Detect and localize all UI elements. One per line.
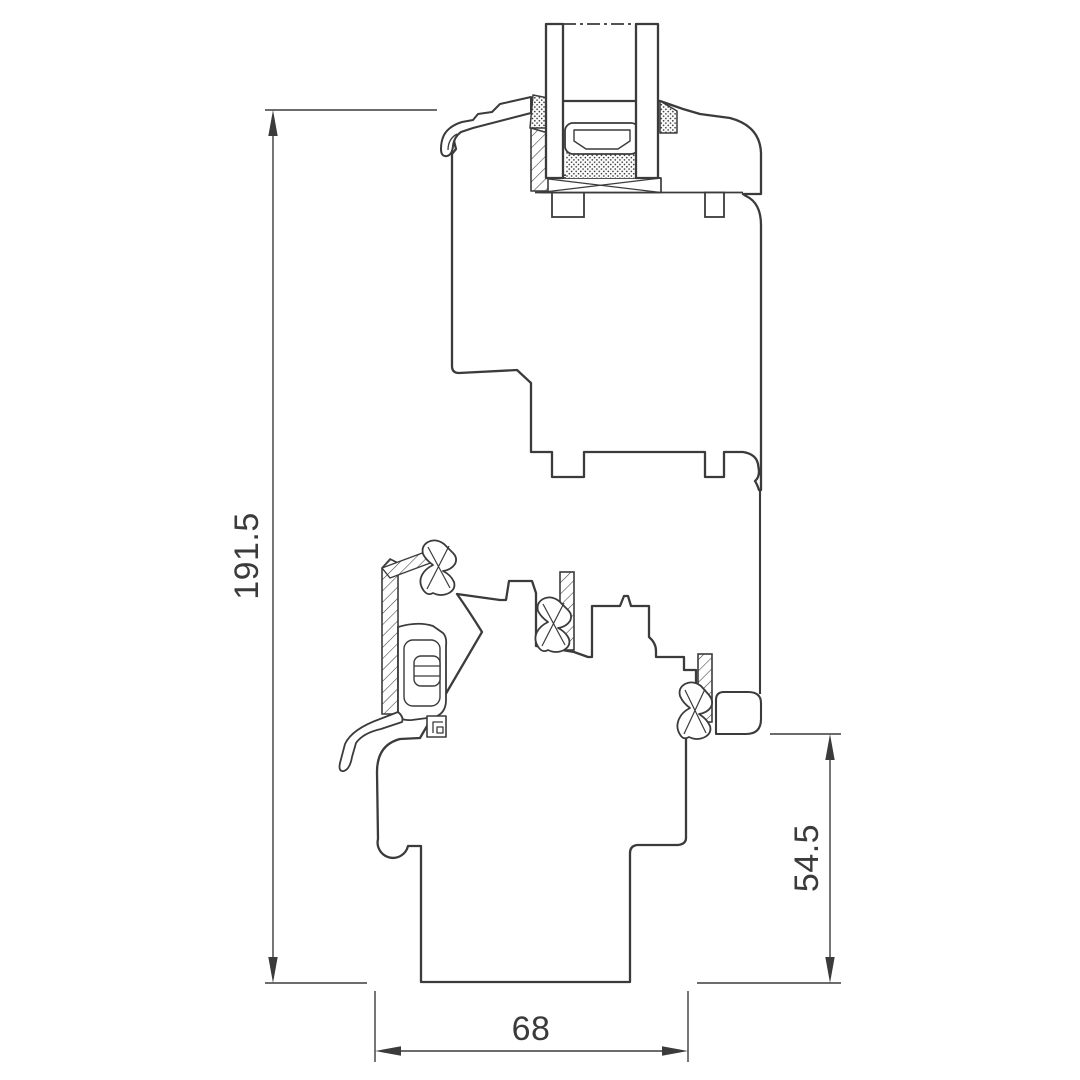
clip-symbol-dot — [437, 727, 443, 733]
arrowhead-down — [825, 957, 834, 983]
glass-pane-inner — [636, 24, 658, 178]
arrowhead-up — [825, 734, 834, 760]
dimension-label-frame-height: 54.5 — [788, 824, 826, 892]
frame-inner-ledge — [716, 692, 761, 734]
arrowhead-right — [662, 1046, 688, 1055]
technical-drawing-canvas: 191.5 54.5 68 — [0, 0, 1080, 1080]
sealant-bed — [566, 152, 638, 178]
drainage-tab-right — [705, 193, 724, 218]
rain-rail-chamber-detail — [414, 656, 440, 686]
glass-pane-outer — [546, 24, 563, 178]
rain-rail-bar — [382, 559, 398, 714]
drainage-tab-left — [552, 193, 584, 218]
spacer-bar-inner — [574, 130, 630, 149]
arrowhead-up — [268, 110, 277, 136]
dimension-overall-height — [265, 110, 437, 983]
arrowhead-left — [375, 1046, 401, 1055]
dimension-label-overall-height: 191.5 — [228, 512, 266, 600]
arrowhead-down — [268, 957, 277, 983]
dimension-label-frame-depth: 68 — [512, 1010, 551, 1048]
window-profile-cross-section: 191.5 54.5 68 — [0, 0, 1080, 1080]
